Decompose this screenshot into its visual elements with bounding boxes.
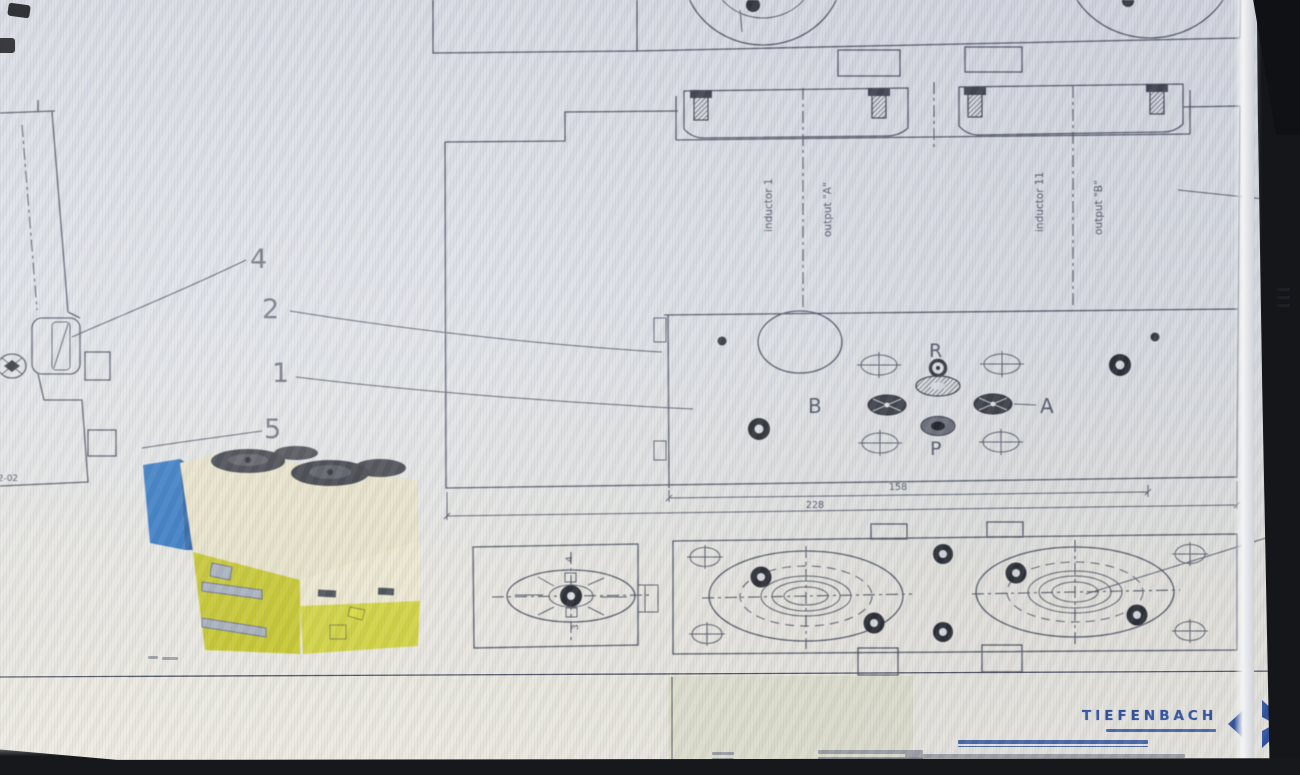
brand-tagline-illegible <box>1106 729 1216 732</box>
brand-name: TIEFENBACH <box>1082 708 1232 748</box>
smudge-mark-2 <box>0 38 15 53</box>
edge-reflection-ticks <box>1277 288 1293 318</box>
paper-edge-highlight <box>1234 0 1254 775</box>
title-block-fields-illegible <box>0 0 1300 775</box>
monitor-photo: inductor 1 output "A" inductor 11 output… <box>0 0 1300 775</box>
